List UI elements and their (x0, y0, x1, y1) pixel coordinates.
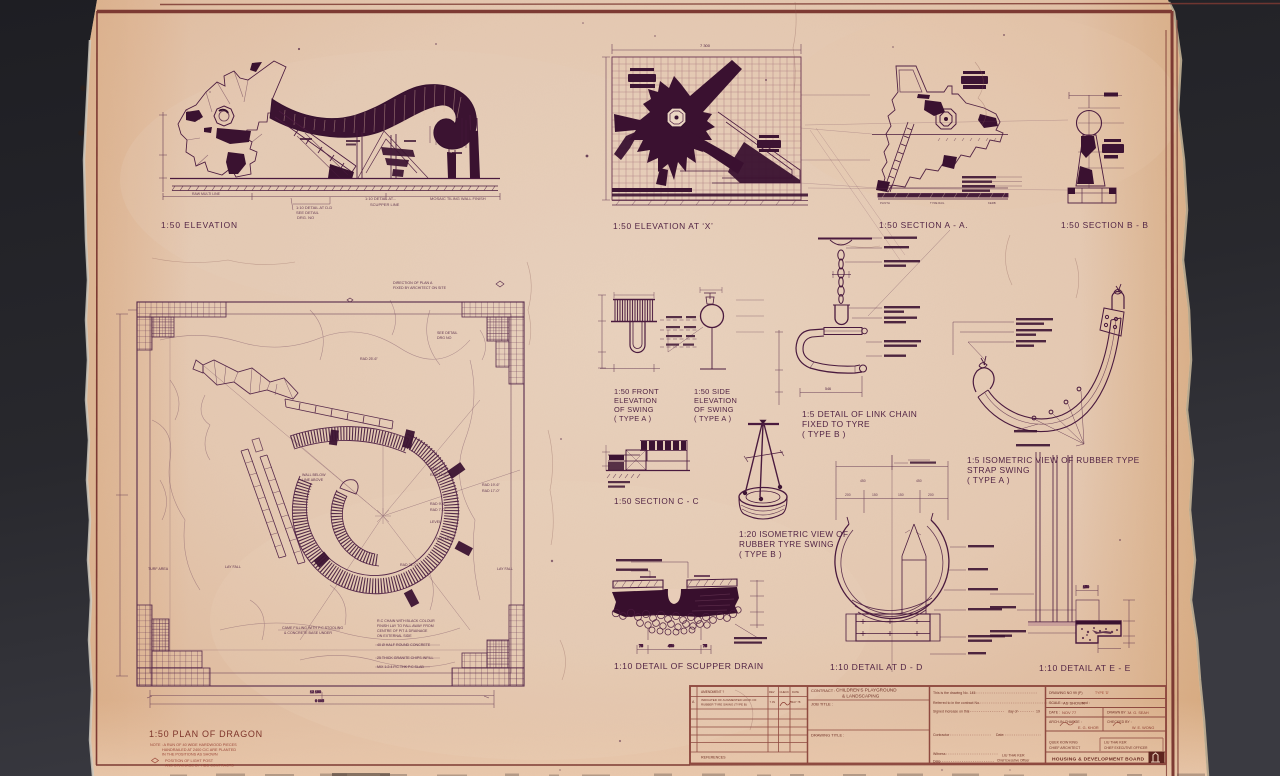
svg-text:RAD 13'-6": RAD 13'-6" (430, 467, 448, 471)
svg-text:CONTRACT :: CONTRACT : (811, 688, 835, 693)
svg-text:DATE :: DATE : (1049, 711, 1060, 715)
svg-text:CHECK: CHECK (780, 690, 790, 694)
svg-text:& CONCRETE BASE UNDER: & CONCRETE BASE UNDER (284, 631, 332, 635)
svg-text:HOUSING & DEVELOPMENT BOARD: HOUSING & DEVELOPMENT BOARD (1052, 757, 1145, 763)
svg-text:6 095: 6 095 (315, 699, 324, 703)
svg-text:CHIEF EXECUTIVE OFFICER: CHIEF EXECUTIVE OFFICER (1104, 746, 1148, 750)
svg-text:FIXED BY ARCHITECT ON SITE: FIXED BY ARCHITECT ON SITE (393, 286, 447, 290)
svg-text:ELEVATION: ELEVATION (694, 396, 737, 405)
svg-text:AS SHOWN: AS SHOWN (1063, 701, 1085, 706)
svg-text:ARCH-IN-CHARGE :: ARCH-IN-CHARGE : (1049, 720, 1082, 724)
svg-text:SEE DETAIL: SEE DETAIL (437, 331, 458, 335)
svg-text:( TYPE B ): ( TYPE B ) (739, 550, 782, 559)
svg-text:( TYPE B ): ( TYPE B ) (802, 429, 846, 439)
svg-text:M. G. SEAH: M. G. SEAH (1128, 711, 1149, 715)
svg-text:ELEVATION: ELEVATION (614, 396, 657, 405)
svg-text:200: 200 (845, 493, 851, 497)
svg-text:( TYPE A ): ( TYPE A ) (967, 475, 1010, 485)
svg-text:1:5 DETAIL OF LINK CHAIN: 1:5 DETAIL OF LINK CHAIN (802, 409, 917, 419)
svg-text:RAD 19'-6": RAD 19'-6" (482, 483, 500, 487)
svg-text:546: 546 (825, 387, 831, 391)
svg-text:( TYPE A ): ( TYPE A ) (614, 414, 651, 423)
svg-text:CHECKED BY :: CHECKED BY : (1107, 720, 1132, 724)
svg-text:day of: day of (1008, 710, 1018, 714)
svg-text:& LANDSCAPING: & LANDSCAPING (842, 694, 880, 699)
svg-text:PLINTH: PLINTH (880, 201, 890, 205)
svg-text:Contractor: Contractor (933, 733, 950, 737)
svg-text:QUEK KOW KING: QUEK KOW KING (1049, 741, 1078, 745)
svg-text:LEVEL: LEVEL (430, 520, 441, 524)
svg-text:Date: Date (933, 760, 940, 764)
svg-text:( TYPE A ): ( TYPE A ) (694, 414, 731, 423)
svg-text:Signed increase on this: Signed increase on this (933, 710, 970, 714)
svg-text:HANDRAILED AT 2400 C/C ARE PLA: HANDRAILED AT 2400 C/C ARE PLANTED (162, 748, 236, 752)
svg-text:1:50 PLAN OF DRAGON: 1:50 PLAN OF DRAGON (149, 729, 263, 739)
svg-text:Date: Date (996, 733, 1003, 737)
svg-text:STRAP SWING: STRAP SWING (967, 465, 1030, 475)
svg-text:CHILDREN'S PLAYGROUND: CHILDREN'S PLAYGROUND (836, 688, 897, 693)
svg-text:SCALE :: SCALE : (1049, 701, 1062, 705)
svg-text:1:10 DETAIL AT E - E: 1:10 DETAIL AT E - E (1039, 663, 1131, 673)
svg-text:W. E. WONG: W. E. WONG (1132, 726, 1154, 730)
svg-text:RAD 25'-6": RAD 25'-6" (360, 357, 378, 361)
svg-text:REFERENCES: REFERENCES (701, 756, 726, 760)
svg-text:1:10 DETAIL AT D - D: 1:10 DETAIL AT D - D (830, 662, 923, 672)
svg-text:1:10 DETAIL OF SCUPPER DRA: 1:10 DETAIL OF SCUPPER DRAIN (614, 661, 764, 671)
svg-text:OF SWING: OF SWING (614, 405, 654, 414)
svg-text:1:50 FRONT: 1:50 FRONT (614, 387, 659, 396)
svg-text:RAW MULTI LINE: RAW MULTI LINE (192, 192, 221, 196)
svg-text:RAD 9'-6": RAD 9'-6" (430, 502, 446, 506)
svg-text:LIU THAI KER: LIU THAI KER (1104, 741, 1127, 745)
svg-text:LAY FALL: LAY FALL (225, 565, 241, 569)
svg-text:POSITION OF LIGHT POST: POSITION OF LIGHT POST (165, 759, 214, 763)
svg-text:DRAWING NO 99 (P): DRAWING NO 99 (P) (1049, 691, 1083, 695)
svg-text:WALL BELOW: WALL BELOW (302, 473, 326, 477)
svg-text:1:50 SECTION B - B: 1:50 SECTION B - B (1061, 220, 1149, 230)
svg-text:19: 19 (1036, 710, 1040, 714)
svg-text:75: 75 (639, 644, 643, 648)
svg-text:OF SWING: OF SWING (694, 405, 734, 414)
svg-text:RAD 7'-0": RAD 7'-0" (430, 508, 446, 512)
svg-text:1:10 DETAIL AT...: 1:10 DETAIL AT... (365, 196, 396, 201)
svg-text:LAY FALL: LAY FALL (497, 567, 513, 571)
svg-text:NOTE : A RUN OF 40 WIDE HARDW: NOTE : A RUN OF 40 WIDE HARDWOOD PIECES (150, 743, 237, 747)
svg-text:DATE: DATE (792, 690, 799, 694)
svg-text:150: 150 (872, 493, 878, 497)
svg-text:DRAWING TITLE :: DRAWING TITLE : (811, 733, 844, 738)
svg-text:DIRECTION OF PLAN A: DIRECTION OF PLAN A (393, 281, 433, 285)
svg-text:RUBBER TYRE SWING: RUBBER TYRE SWING (739, 540, 834, 549)
svg-text:RAD 17'-0": RAD 17'-0" (482, 489, 500, 493)
svg-text:RAD 21'-0": RAD 21'-0" (400, 563, 418, 567)
svg-text:Referred to in the contract No: Referred to in the contract No. (933, 701, 980, 705)
svg-text:1:50 SECTION A - A.: 1:50 SECTION A - A. (879, 220, 968, 230)
svg-text:NOV 77: NOV 77 (1062, 710, 1077, 715)
svg-text:AMENDMENT ?: AMENDMENT ? (701, 690, 724, 694)
svg-text:JOB TITLE :: JOB TITLE : (811, 702, 833, 707)
svg-text:MOSAIC TILING WALL FINISH: MOSAIC TILING WALL FINISH (430, 196, 486, 201)
svg-text:REV: REV (769, 690, 775, 694)
svg-text:DRAWN BY :: DRAWN BY : (1107, 711, 1128, 715)
svg-text:TYPE 'D': TYPE 'D' (1095, 691, 1109, 695)
svg-text:R.C CHAIN WITH BLACK COLOUR: R.C CHAIN WITH BLACK COLOUR (377, 619, 435, 623)
svg-text:This is the drawing No. 145: This is the drawing No. 145 (933, 691, 975, 695)
svg-text:7 JN: 7 JN (770, 700, 776, 704)
svg-text:RUBBER TYRE SWING (TYPE B): RUBBER TYRE SWING (TYPE B) (701, 703, 747, 707)
svg-text:LINE ABOVE: LINE ABOVE (302, 478, 324, 482)
svg-text:TYRE RAIL: TYRE RAIL (930, 201, 945, 205)
svg-text:75: 75 (703, 644, 707, 648)
svg-text:DRG NO: DRG NO (437, 336, 452, 340)
svg-text:CENTRE OF PIT & DRAINAGE: CENTRE OF PIT & DRAINAGE (377, 629, 428, 633)
svg-text:7 300: 7 300 (700, 43, 711, 48)
svg-text:450: 450 (860, 479, 866, 483)
svg-text:1:50 SIDE: 1:50 SIDE (694, 387, 730, 396)
svg-text:E. G. KHOR: E. G. KHOR (1078, 726, 1099, 730)
svg-text:AND DRAINAGE BY HDB CONTRACTS: AND DRAINAGE BY HDB CONTRACTS (165, 764, 234, 768)
svg-text:RAD 15'-6": RAD 15'-6" (436, 537, 454, 541)
svg-text:FIXED TO TYRE: FIXED TO TYRE (802, 419, 870, 429)
svg-text:1:50 SECTION C - C: 1:50 SECTION C - C (614, 497, 699, 506)
svg-text:MAY 78: MAY 78 (791, 700, 801, 704)
svg-text:450: 450 (916, 479, 922, 483)
svg-text:CAME FILLING WITH P.C STOOLING: CAME FILLING WITH P.C STOOLING (282, 626, 343, 630)
svg-text:CHIEF ARCHITECT: CHIEF ARCHITECT (1049, 746, 1081, 750)
svg-text:150: 150 (898, 493, 904, 497)
svg-text:FINISH LAY TO FALL AWAY FROM: FINISH LAY TO FALL AWAY FROM (377, 624, 434, 628)
svg-text:1:50 ELEVATION: 1:50 ELEVATION (161, 220, 238, 230)
svg-text:LIU THAI KER: LIU THAI KER (1002, 754, 1025, 758)
svg-text:TURF AREA: TURF AREA (148, 567, 169, 571)
svg-text:SCUPPER LINE: SCUPPER LINE (370, 202, 400, 207)
svg-text:200: 200 (928, 493, 934, 497)
svg-text:DRG. NO: DRG. NO (297, 215, 314, 220)
svg-text:12 190: 12 190 (310, 690, 321, 694)
svg-text:ON EXTERNAL SIDE: ON EXTERNAL SIDE (377, 634, 412, 638)
svg-text:Chief Executive Officer: Chief Executive Officer (997, 759, 1030, 763)
svg-text:450: 450 (668, 644, 674, 648)
svg-text:1:50 ELEVATION AT ‘X’: 1:50 ELEVATION AT ‘X’ (613, 221, 713, 231)
svg-text:RAD 11'-0": RAD 11'-0" (430, 473, 448, 477)
svg-text:1:20 ISOMETRIC VIEW OF: 1:20 ISOMETRIC VIEW OF (739, 530, 848, 539)
svg-text:150: 150 (1083, 585, 1089, 589)
svg-text:Witness: Witness (933, 752, 946, 756)
svg-text:KERB: KERB (988, 201, 996, 205)
svg-text:IN THE POSITIONS AS SHOWN: IN THE POSITIONS AS SHOWN (162, 753, 218, 757)
